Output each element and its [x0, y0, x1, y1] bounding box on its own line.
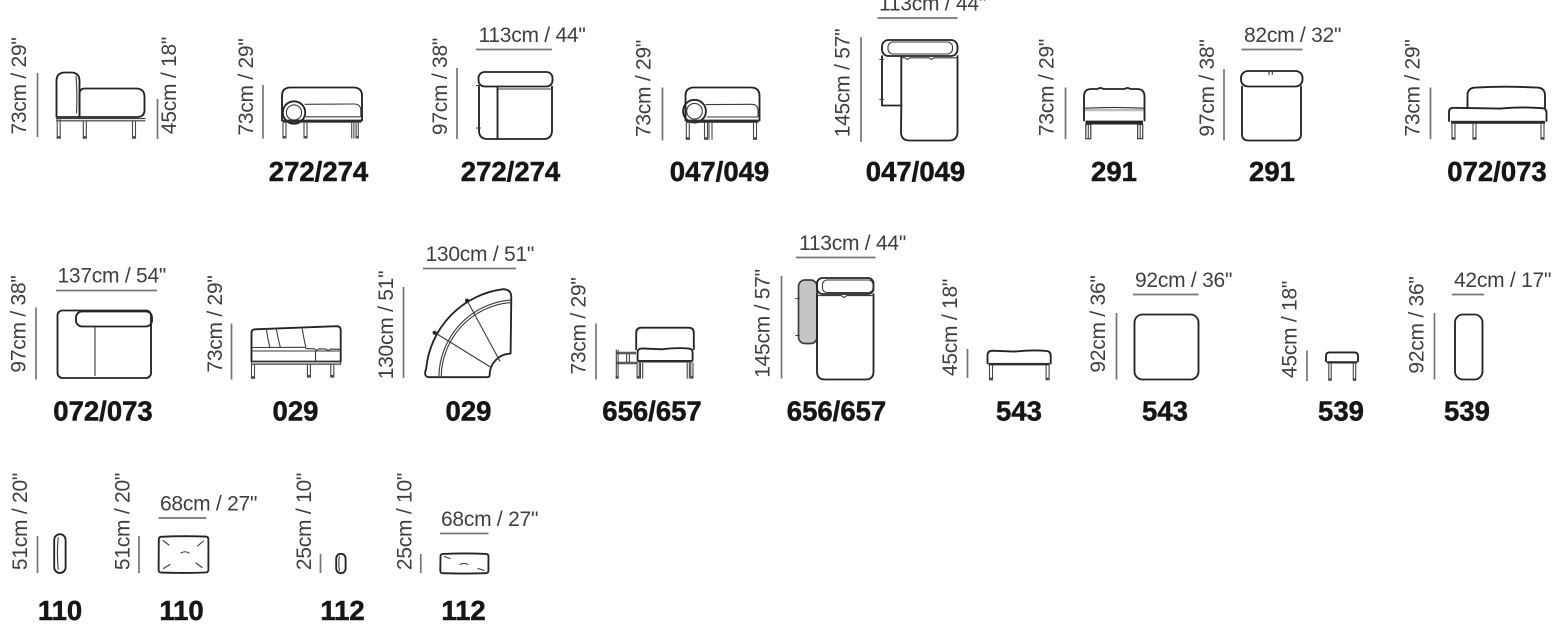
svg-text:137cm / 54": 137cm / 54": [58, 265, 167, 288]
svg-text:68cm / 27": 68cm / 27": [441, 508, 538, 531]
svg-text:047/049: 047/049: [670, 156, 769, 187]
svg-text:25cm / 10": 25cm / 10": [293, 473, 316, 570]
svg-text:047/049: 047/049: [866, 156, 965, 187]
svg-text:291: 291: [1249, 156, 1295, 187]
svg-text:97cm / 38": 97cm / 38": [8, 275, 31, 372]
svg-text:92cm / 36": 92cm / 36": [1135, 269, 1232, 292]
svg-text:73cm / 29": 73cm / 29": [204, 275, 227, 372]
svg-text:656/657: 656/657: [602, 396, 701, 427]
svg-text:97cm / 38": 97cm / 38": [1196, 39, 1219, 136]
svg-text:25cm / 10": 25cm / 10": [394, 473, 417, 570]
svg-text:45cm / 18": 45cm / 18": [158, 37, 181, 134]
svg-text:73cm / 29": 73cm / 29": [235, 38, 258, 135]
svg-text:272/274: 272/274: [269, 156, 369, 187]
svg-text:145cm / 57": 145cm / 57": [832, 29, 855, 138]
svg-text:73cm / 29": 73cm / 29": [633, 40, 656, 137]
svg-text:291: 291: [1091, 156, 1137, 187]
svg-text:130cm / 51": 130cm / 51": [426, 243, 535, 266]
svg-text:113cm / 44": 113cm / 44": [479, 24, 586, 47]
svg-text:68cm / 27": 68cm / 27": [160, 493, 257, 516]
svg-text:543: 543: [1142, 396, 1188, 427]
svg-text:73cm / 29": 73cm / 29": [1402, 39, 1425, 136]
svg-text:029: 029: [446, 396, 492, 427]
svg-text:113cm / 44": 113cm / 44": [799, 232, 906, 255]
svg-text:072/073: 072/073: [1447, 156, 1546, 187]
svg-text:110: 110: [38, 595, 82, 626]
svg-text:45cm / 18": 45cm / 18": [939, 279, 962, 376]
svg-text:51cm / 20": 51cm / 20": [112, 473, 135, 570]
svg-text:42cm / 17": 42cm / 17": [1454, 269, 1551, 292]
svg-text:51cm / 20": 51cm / 20": [9, 473, 32, 570]
svg-text:97cm / 38": 97cm / 38": [429, 38, 452, 135]
svg-text:543: 543: [996, 396, 1042, 427]
svg-text:82cm / 32": 82cm / 32": [1244, 24, 1341, 47]
svg-text:539: 539: [1444, 396, 1490, 427]
svg-text:539: 539: [1318, 396, 1364, 427]
svg-text:113cm / 44": 113cm / 44": [879, 0, 986, 16]
svg-text:112: 112: [441, 595, 485, 626]
svg-text:73cm / 29": 73cm / 29": [568, 277, 591, 374]
svg-text:130cm / 51": 130cm / 51": [375, 271, 398, 380]
svg-text:272/274: 272/274: [461, 156, 561, 187]
svg-text:92cm / 36": 92cm / 36": [1087, 275, 1110, 372]
svg-text:029: 029: [273, 396, 319, 427]
svg-text:92cm / 36": 92cm / 36": [1406, 276, 1429, 373]
svg-text:45cm / 18": 45cm / 18": [1279, 281, 1302, 378]
svg-text:656/657: 656/657: [787, 396, 886, 427]
svg-text:145cm / 57": 145cm / 57": [752, 269, 775, 378]
svg-text:73cm / 29": 73cm / 29": [1036, 39, 1059, 136]
svg-text:072/073: 072/073: [53, 396, 152, 427]
svg-text:73cm / 29": 73cm / 29": [8, 37, 31, 134]
svg-text:112: 112: [320, 595, 364, 626]
svg-text:110: 110: [159, 595, 203, 626]
